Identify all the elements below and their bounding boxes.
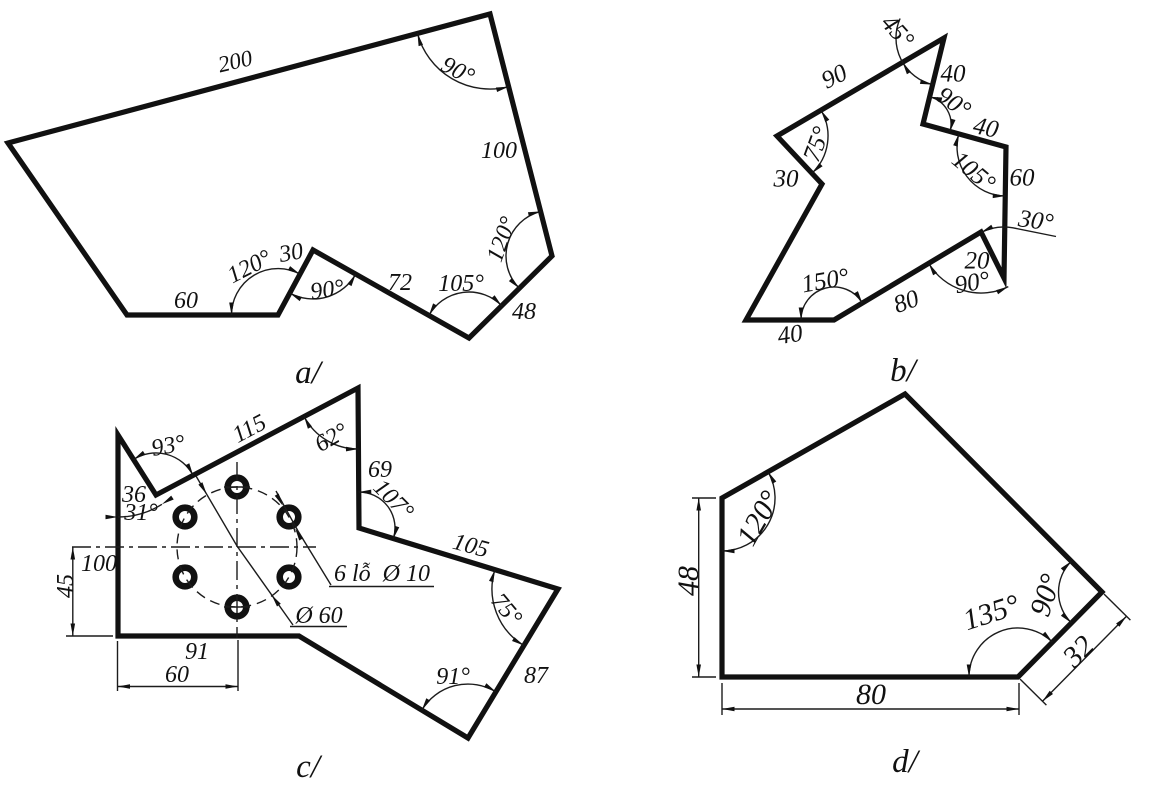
svg-text:91°: 91° (436, 664, 470, 690)
svg-text:48: 48 (512, 299, 536, 325)
svg-text:6 lỗ Ø 10: 6 lỗ Ø 10 (334, 561, 430, 587)
svg-text:d/: d/ (892, 744, 921, 780)
svg-text:30°: 30° (1016, 205, 1055, 237)
svg-text:60: 60 (174, 288, 198, 314)
svg-text:31°: 31° (123, 500, 158, 526)
svg-text:87: 87 (524, 663, 549, 689)
svg-text:40: 40 (941, 61, 967, 88)
svg-text:Ø 60: Ø 60 (294, 603, 342, 629)
svg-text:60: 60 (1010, 165, 1036, 192)
svg-text:40: 40 (776, 320, 805, 350)
svg-text:100: 100 (81, 551, 117, 577)
svg-text:80: 80 (856, 678, 886, 711)
svg-text:60: 60 (165, 662, 189, 688)
svg-text:c/: c/ (296, 749, 323, 785)
svg-text:a/: a/ (295, 355, 324, 391)
svg-text:30: 30 (276, 238, 305, 268)
svg-text:105°: 105° (438, 271, 484, 297)
svg-text:30: 30 (773, 166, 800, 193)
svg-text:b/: b/ (890, 353, 919, 389)
svg-text:72: 72 (388, 270, 412, 296)
svg-text:48: 48 (672, 566, 705, 596)
svg-text:45: 45 (53, 574, 79, 598)
svg-text:90°: 90° (309, 275, 346, 305)
svg-text:100: 100 (481, 138, 517, 164)
